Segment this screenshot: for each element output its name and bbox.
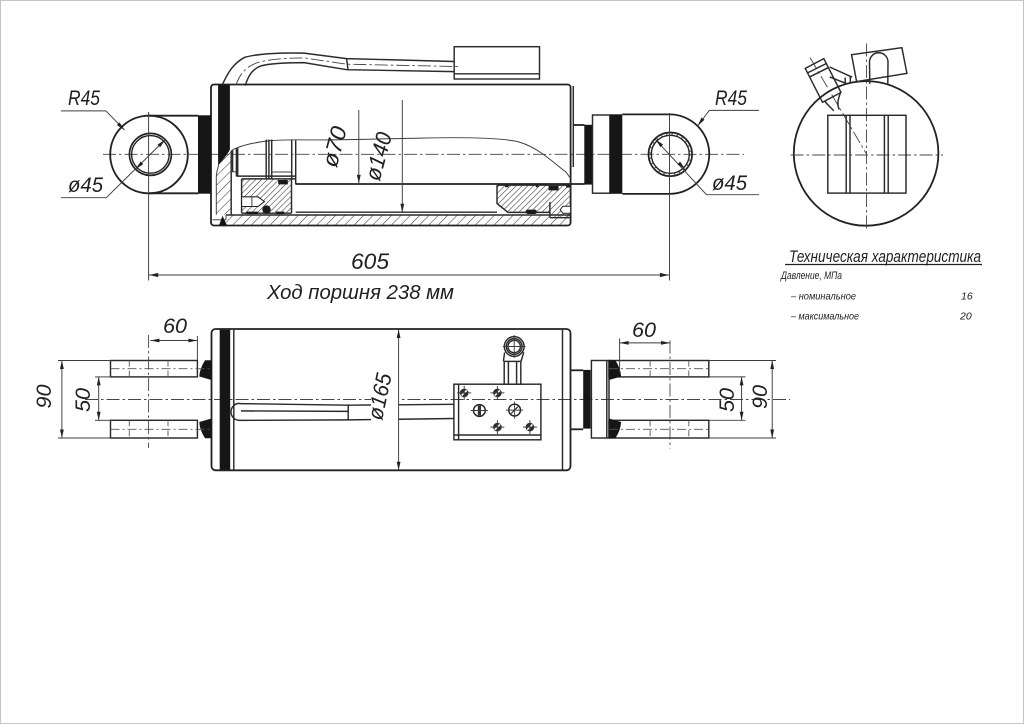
- svg-text:60: 60: [632, 319, 656, 342]
- svg-text:50: 50: [716, 388, 739, 412]
- svg-text:Ход поршня 238 мм: Ход поршня 238 мм: [266, 282, 454, 304]
- svg-text:ø45: ø45: [712, 172, 747, 195]
- svg-text:– максимальное: – максимальное: [790, 311, 859, 323]
- svg-text:R45: R45: [68, 87, 100, 110]
- svg-text:ø45: ø45: [68, 174, 103, 197]
- svg-text:R45: R45: [715, 87, 747, 110]
- svg-text:60: 60: [163, 315, 187, 338]
- svg-text:20: 20: [959, 311, 972, 323]
- svg-text:Техническая характеристика: Техническая характеристика: [789, 248, 981, 266]
- svg-text:90: 90: [33, 384, 56, 408]
- svg-text:16: 16: [961, 291, 973, 303]
- svg-text:605: 605: [351, 249, 390, 274]
- svg-text:– номинальное: – номинальное: [790, 291, 856, 303]
- svg-text:90: 90: [749, 385, 772, 409]
- svg-text:Давление, МПа: Давление, МПа: [779, 270, 842, 282]
- svg-text:50: 50: [72, 388, 95, 412]
